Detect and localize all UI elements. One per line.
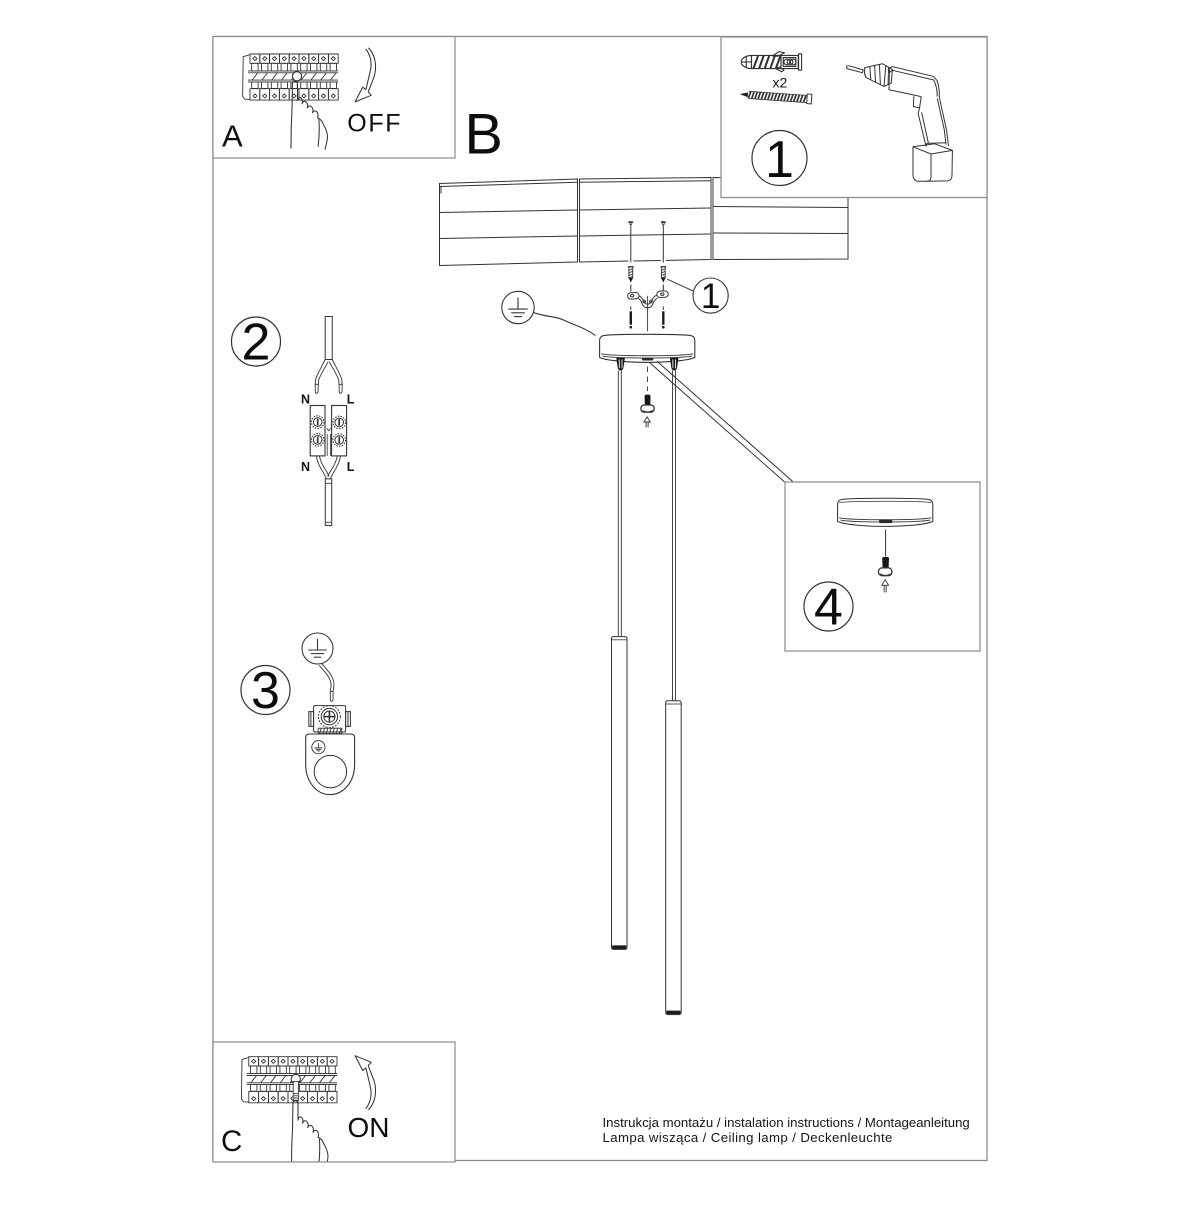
svg-text:x2: x2	[773, 75, 788, 91]
svg-text:1: 1	[765, 131, 794, 189]
svg-text:OFF: OFF	[347, 109, 402, 137]
svg-text:N: N	[301, 460, 310, 474]
svg-text:Lampa wisząca / Ceiling lamp /: Lampa wisząca / Ceiling lamp / Deckenleu…	[603, 1130, 893, 1145]
svg-text:B: B	[465, 103, 503, 167]
svg-text:3: 3	[251, 662, 280, 720]
svg-text:L: L	[347, 393, 355, 407]
svg-text:L: L	[347, 460, 355, 474]
svg-text:A: A	[222, 119, 243, 154]
svg-text:N: N	[301, 393, 310, 407]
svg-text:4: 4	[814, 578, 843, 636]
svg-text:ON: ON	[348, 1112, 390, 1143]
svg-text:Instrukcja montażu / instalati: Instrukcja montażu / instalation instruc…	[603, 1115, 970, 1130]
svg-text:2: 2	[242, 313, 271, 371]
svg-text:1: 1	[701, 277, 720, 316]
svg-text:C: C	[221, 1125, 242, 1158]
